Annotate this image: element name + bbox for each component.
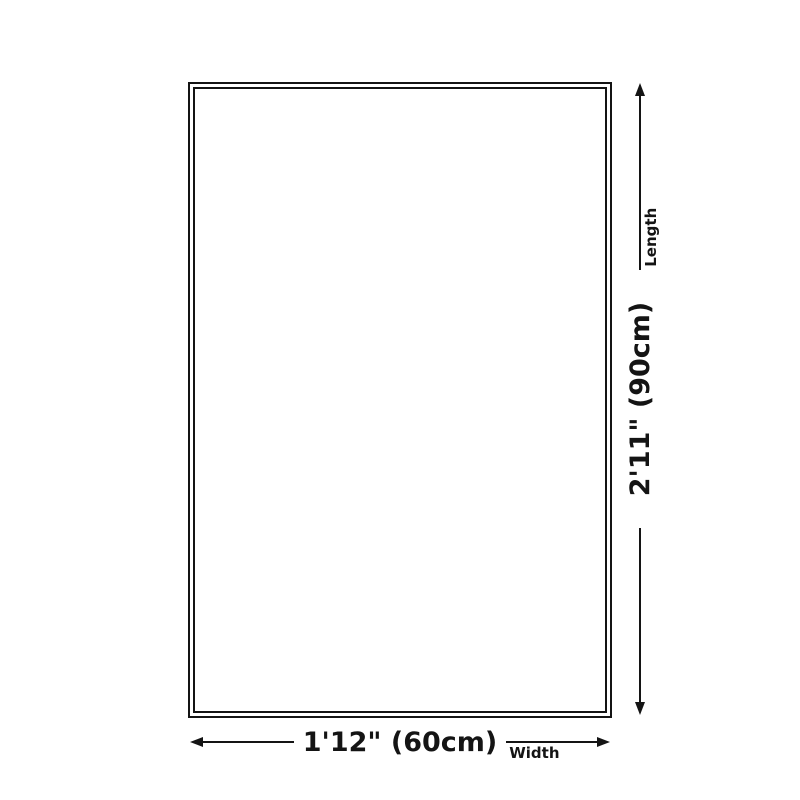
width-label: Width bbox=[509, 746, 559, 761]
width-value: 1'12" (60cm) bbox=[294, 729, 506, 756]
arrow-down-icon bbox=[635, 702, 645, 715]
width-dimension: 1'12" (60cm) Width bbox=[190, 712, 610, 772]
dimension-line: Width bbox=[506, 741, 597, 743]
arrow-left-icon bbox=[190, 737, 203, 747]
rug-outline bbox=[188, 82, 612, 718]
length-value: 2'11" (90cm) bbox=[627, 270, 654, 528]
length-dimension: 2'11" (90cm) Length bbox=[610, 83, 670, 715]
rug-inner-outline bbox=[193, 87, 607, 713]
arrow-up-icon bbox=[635, 83, 645, 96]
length-label: Length bbox=[644, 208, 659, 267]
dimension-line bbox=[203, 741, 294, 743]
dimension-line: Length bbox=[639, 96, 641, 270]
arrow-right-icon bbox=[597, 737, 610, 747]
dimension-line bbox=[639, 528, 641, 702]
size-diagram: 2'11" (90cm) Length 1'12" (60cm) Width bbox=[0, 0, 800, 800]
